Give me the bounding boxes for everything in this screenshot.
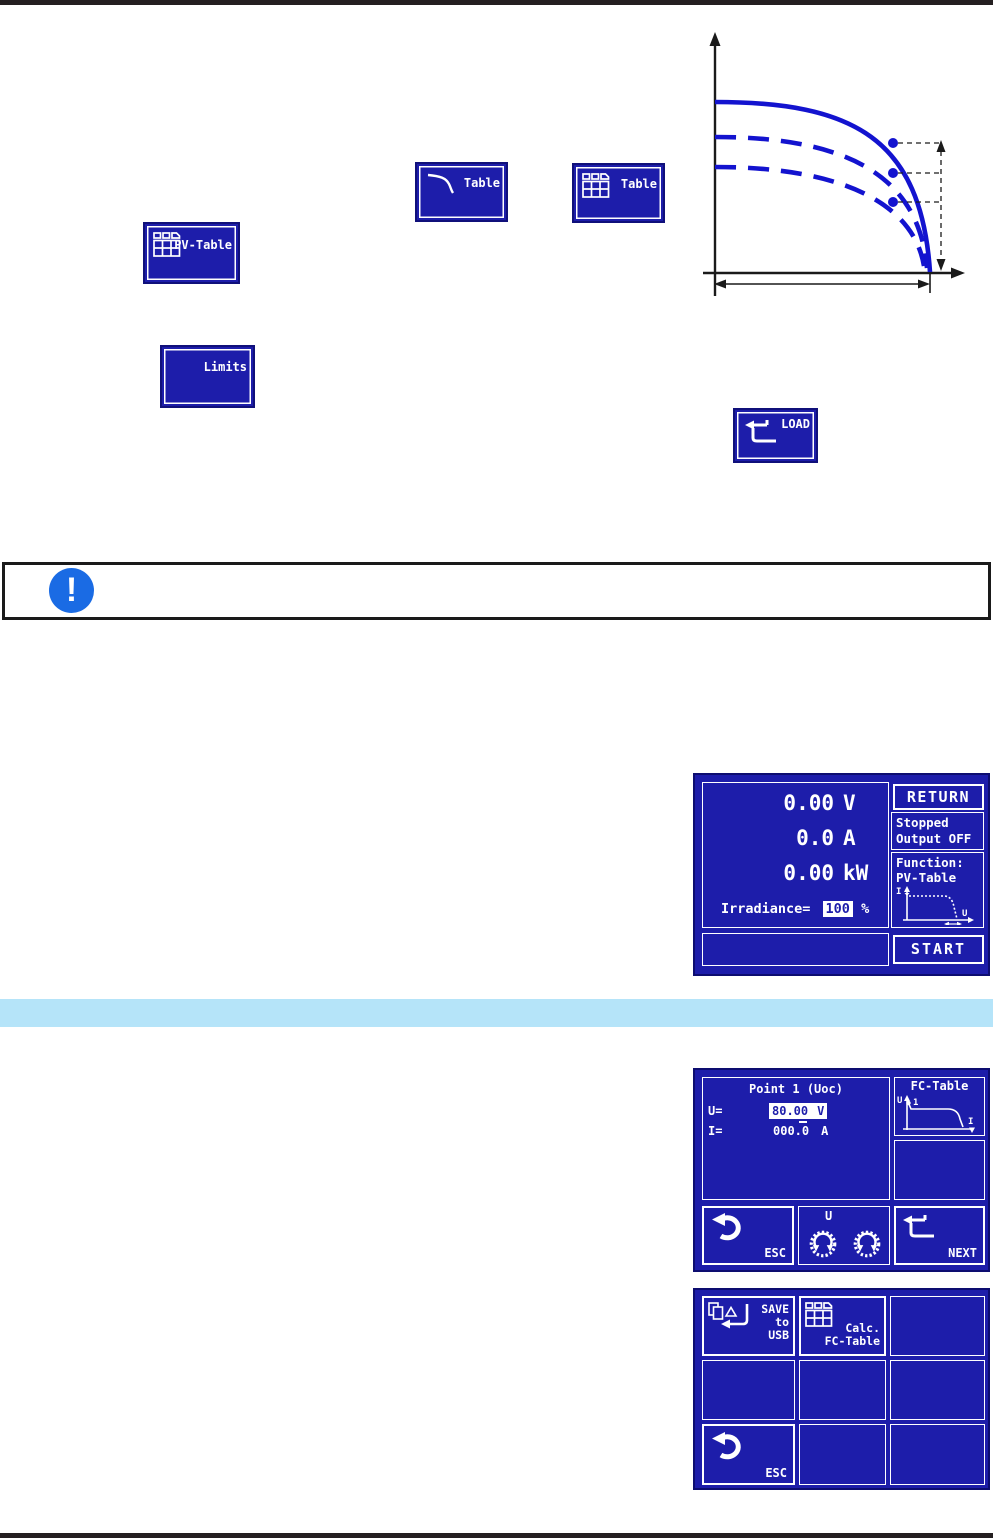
esc-label: ESC [765,1466,787,1480]
empty-cell [799,1424,886,1485]
power-value: 0.00 [783,861,834,885]
xy-table-button[interactable]: XY- Table [415,162,508,222]
empty-cell [799,1360,886,1420]
notice-box: ! [2,562,991,620]
manual-page: XY- Table PV- Table [0,0,993,1538]
svg-text:I: I [968,1117,973,1127]
rotary-knob-right-icon[interactable] [851,1228,883,1260]
measurement-area: 0.00V 0.0A 0.00kW Irradiance= 100 % [702,782,889,928]
current-unit: A [843,826,873,850]
fc-table-status-area: FC-Table U 1 I [894,1077,985,1136]
point-title: Point 1 (Uoc) [703,1082,889,1096]
status-area: Stopped Output OFF [891,812,984,850]
mpp-dots [888,138,898,207]
table-grid-icon [581,172,612,199]
calc-pv-table-label-line2: PV-Table [174,239,232,252]
svg-text:U: U [962,909,967,919]
function-area: Function: PV-Table I U [891,852,984,928]
voltage-value: 0.00 [783,791,834,815]
start-label: START [911,940,966,958]
function-name: PV-Table [896,870,979,885]
svg-text:1: 1 [913,1098,918,1108]
i-label: I= [708,1124,722,1138]
save-usb-icon [707,1301,753,1331]
digit-cursor [799,1121,807,1123]
pv-curve-diagram [693,30,985,302]
status-line2: Output OFF [896,831,979,847]
calc-pv-table-button[interactable]: Calc. PV-Table [143,222,240,284]
point-entry-area: Point 1 (Uoc) U= 80.00V I= 000.0A [702,1077,890,1200]
page-bottom-rule [0,1533,993,1538]
u-value: 80.00 [772,1104,808,1118]
section-heading-bar [0,999,993,1027]
u-value-field[interactable]: 80.00V [769,1103,827,1119]
return-label: RETURN [907,788,970,806]
lcd-screen-fc-point: Point 1 (Uoc) U= 80.00V I= 000.0A FC-Tab… [693,1068,990,1272]
undo-arrow-icon [709,1430,749,1462]
pv-function-icon: I U [894,885,978,925]
pv-curves [715,102,930,272]
enter-arrow-icon [900,1211,938,1241]
pv-table-label-line2: Table [614,178,657,191]
lcd-screen-pv-table: 0.00V 0.0A 0.00kW Irradiance= 100 % RETU… [693,773,990,976]
rotary-knob-left-icon[interactable] [807,1228,839,1260]
empty-cell [890,1296,985,1356]
svg-text:U: U [897,1096,902,1106]
status-line1: Stopped [896,815,979,831]
irradiance-unit: % [861,901,869,917]
attention-icon: ! [49,568,94,613]
irradiance-value-field[interactable]: 100 [823,901,853,917]
current-value: 0.0 [796,826,834,850]
esc-label: ESC [764,1246,786,1260]
page-top-rule [0,0,993,5]
up-limits-button[interactable]: U/P Limits [160,345,255,408]
range-arrows [714,140,946,293]
load-label: LOAD [767,418,810,431]
save-label-line3: USB [761,1329,789,1342]
empty-cell [890,1424,985,1485]
pv-table-label-line1: PV- [614,139,657,152]
u-unit: V [817,1104,824,1118]
pv-table-button[interactable]: PV- Table [572,163,665,223]
load-button[interactable]: LOAD [733,408,818,463]
esc-button[interactable]: ESC [702,1206,794,1265]
xy-table-label-line1: XY- [457,138,500,151]
lcd-screen-fc-menu: SAVE to USB Calc. FC-Table [693,1288,990,1490]
knob-assignment-label: U [825,1209,832,1223]
empty-cell [702,1360,795,1420]
function-label: Function: [896,855,979,870]
up-limits-label-line1: U/P [204,322,247,335]
calc-fc-table-button[interactable]: Calc. FC-Table [799,1296,886,1356]
fc-curve-icon: U 1 I [896,1094,982,1134]
empty-cell [894,1140,985,1200]
save-to-usb-button[interactable]: SAVE to USB [702,1296,795,1356]
next-button[interactable]: NEXT [894,1206,985,1265]
fc-table-label: FC-Table [895,1079,984,1093]
irradiance-label: Irradiance= [721,901,810,917]
up-limits-label-line2: Limits [204,361,247,374]
xy-table-label-line2: Table [457,177,500,190]
power-unit: kW [843,861,873,885]
esc-button[interactable]: ESC [702,1424,795,1485]
u-label: U= [708,1104,722,1118]
empty-softkey-cell [702,933,889,966]
undo-arrow-icon [709,1211,749,1243]
svg-text:I: I [896,887,901,897]
calc-pv-table-label-line1: Calc. [174,200,232,213]
start-button[interactable]: START [893,935,984,964]
knob-assignment-cell: U [798,1206,890,1265]
voltage-unit: V [843,791,873,815]
calc-fc-label-line2: FC-Table [825,1335,880,1348]
return-button[interactable]: RETURN [893,784,984,810]
next-label: NEXT [948,1246,977,1260]
i-value: 000.0 [773,1124,809,1138]
empty-cell [890,1360,985,1420]
i-unit: A [821,1124,828,1138]
